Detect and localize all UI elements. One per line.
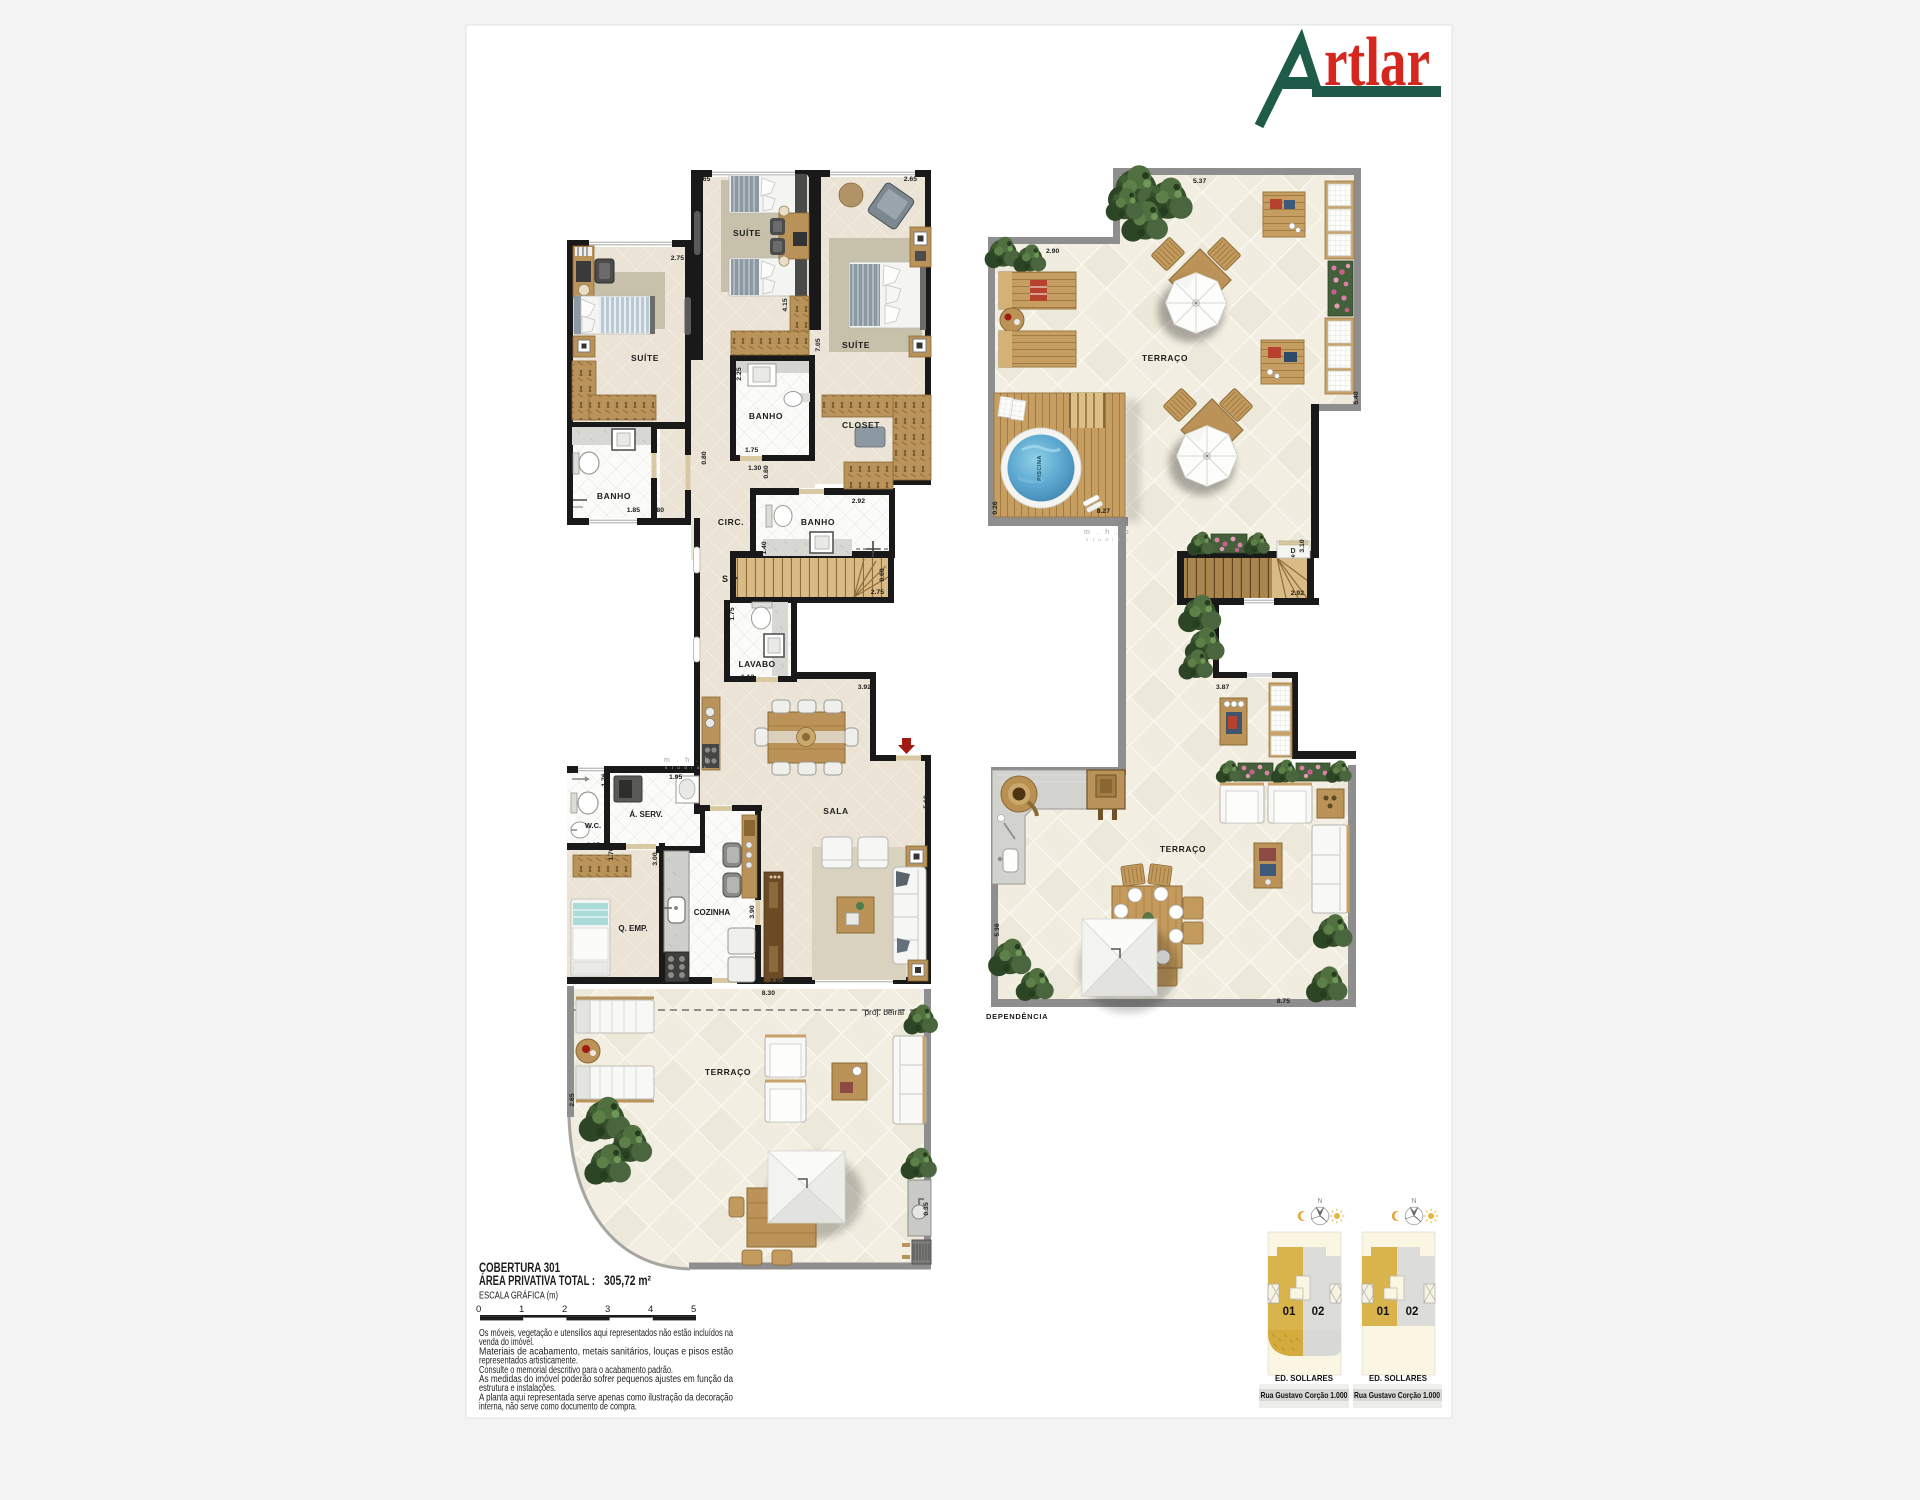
svg-text:3.10: 3.10	[1299, 539, 1306, 552]
svg-text:ED. SOLLARES: ED. SOLLARES	[1275, 1373, 1333, 1383]
svg-text:TERRAÇO: TERRAÇO	[1142, 353, 1188, 363]
svg-text:1.75: 1.75	[729, 607, 736, 620]
svg-text:SUÍTE: SUÍTE	[842, 340, 870, 350]
svg-text:BANHO: BANHO	[749, 411, 783, 421]
svg-text:8.27: 8.27	[1097, 508, 1110, 515]
svg-text:7.05: 7.05	[815, 338, 822, 351]
svg-text:2.20: 2.20	[695, 977, 708, 984]
svg-text:5.40: 5.40	[1353, 391, 1360, 404]
svg-text:PISCINA: PISCINA	[1037, 455, 1043, 481]
svg-text:ED. SOLLARES: ED. SOLLARES	[1369, 1373, 1427, 1383]
svg-text:s t u d i o s: s t u d i o s	[665, 765, 708, 770]
svg-text:2.25: 2.25	[736, 367, 743, 380]
svg-text:CIRC.: CIRC.	[718, 517, 744, 527]
svg-text:BANHO: BANHO	[801, 517, 835, 527]
svg-text:01: 01	[1377, 1306, 1390, 1318]
svg-text:5.36: 5.36	[994, 923, 1001, 936]
svg-text:S: S	[722, 574, 728, 584]
svg-text:0.80: 0.80	[701, 451, 708, 464]
svg-text:3.00: 3.00	[652, 852, 659, 865]
svg-text:2.90: 2.90	[1046, 248, 1059, 255]
svg-text:2.92: 2.92	[1291, 590, 1304, 597]
svg-text:1.40: 1.40	[761, 541, 768, 554]
svg-text:m . h . b: m . h . b	[664, 757, 711, 764]
svg-text:D: D	[1290, 548, 1295, 555]
svg-text:0.26: 0.26	[992, 501, 999, 514]
svg-text:8.75: 8.75	[1277, 998, 1290, 1005]
svg-text:4: 4	[648, 1304, 653, 1315]
svg-text:ÁREA PRIVATIVA TOTAL :: ÁREA PRIVATIVA TOTAL :	[479, 1273, 595, 1288]
svg-text:0.80: 0.80	[651, 507, 664, 514]
svg-text:m . h . b: m . h . b	[1084, 529, 1131, 536]
svg-text:SUÍTE: SUÍTE	[631, 353, 659, 363]
svg-text:0.60: 0.60	[879, 568, 886, 581]
svg-text:3: 3	[605, 1304, 610, 1315]
svg-text:rtlar: rtlar	[1324, 24, 1430, 101]
svg-text:1.85: 1.85	[627, 507, 640, 514]
svg-text:TERRAÇO: TERRAÇO	[1160, 844, 1206, 854]
svg-text:ESCALA GRÁFICA (m): ESCALA GRÁFICA (m)	[479, 1289, 558, 1302]
svg-text:8.30: 8.30	[762, 990, 775, 997]
svg-text:interna, não serve como docume: interna, não serve como documento de com…	[479, 1402, 637, 1413]
svg-text:Rua Gustavo Corção 1.000: Rua Gustavo Corção 1.000	[1354, 1390, 1440, 1400]
svg-text:2: 2	[562, 1304, 567, 1315]
svg-text:proj. beiral: proj. beiral	[864, 1007, 904, 1017]
svg-text:1.75: 1.75	[745, 447, 758, 454]
svg-text:1.12: 1.12	[741, 674, 754, 681]
svg-text:5.37: 5.37	[1193, 178, 1206, 185]
svg-text:2.65: 2.65	[569, 1093, 576, 1106]
svg-text:s t u d i o s: s t u d i o s	[1086, 537, 1129, 542]
svg-text:Q. EMP.: Q. EMP.	[618, 924, 647, 933]
svg-text:0: 0	[476, 1304, 481, 1315]
svg-text:3.87: 3.87	[1216, 684, 1229, 691]
svg-text:2.75: 2.75	[671, 255, 684, 262]
svg-text:N: N	[1317, 1198, 1322, 1205]
svg-text:Rua Gustavo Corção 1.000: Rua Gustavo Corção 1.000	[1261, 1390, 1348, 1400]
svg-text:305,72 m²: 305,72 m²	[604, 1273, 651, 1288]
svg-text:SUÍTE: SUÍTE	[733, 228, 761, 238]
svg-text:2.92: 2.92	[852, 498, 865, 505]
svg-text:01: 01	[1283, 1306, 1296, 1318]
svg-text:3.92: 3.92	[858, 684, 871, 691]
svg-text:1.95: 1.95	[669, 774, 682, 781]
svg-text:CLOSET: CLOSET	[842, 420, 880, 430]
svg-text:1: 1	[519, 1304, 524, 1315]
svg-text:0.80: 0.80	[763, 465, 770, 478]
svg-text:2.15: 2.15	[567, 441, 574, 454]
svg-text:Á. SERV.: Á. SERV.	[629, 810, 662, 819]
svg-text:N: N	[1411, 1198, 1416, 1205]
svg-text:0.85: 0.85	[587, 842, 600, 849]
svg-text:02: 02	[1312, 1306, 1325, 1318]
svg-text:2.75: 2.75	[871, 589, 884, 596]
svg-text:0.35: 0.35	[923, 1202, 930, 1215]
svg-text:3.90: 3.90	[770, 978, 783, 985]
svg-text:BANHO: BANHO	[597, 491, 631, 501]
svg-text:02: 02	[1406, 1306, 1419, 1318]
svg-text:2.65: 2.65	[904, 176, 917, 183]
svg-text:DEPENDÊNCIA: DEPENDÊNCIA	[986, 1012, 1048, 1021]
svg-text:TERRAÇO: TERRAÇO	[705, 1067, 751, 1077]
svg-text:LAVABO: LAVABO	[738, 659, 775, 669]
svg-text:1.30: 1.30	[748, 465, 761, 472]
svg-text:5: 5	[691, 1304, 696, 1315]
svg-text:3.90: 3.90	[749, 905, 756, 918]
svg-text:SALA: SALA	[823, 806, 849, 816]
svg-text:1.76: 1.76	[601, 773, 608, 786]
svg-text:4.15: 4.15	[782, 298, 789, 311]
svg-text:2.65: 2.65	[697, 176, 710, 183]
svg-text:W.C.: W.C.	[585, 821, 601, 830]
svg-text:5.12: 5.12	[923, 795, 930, 808]
svg-text:2.00: 2.00	[598, 977, 611, 984]
svg-text:COZINHA: COZINHA	[694, 908, 731, 917]
svg-text:1.76: 1.76	[608, 847, 615, 860]
